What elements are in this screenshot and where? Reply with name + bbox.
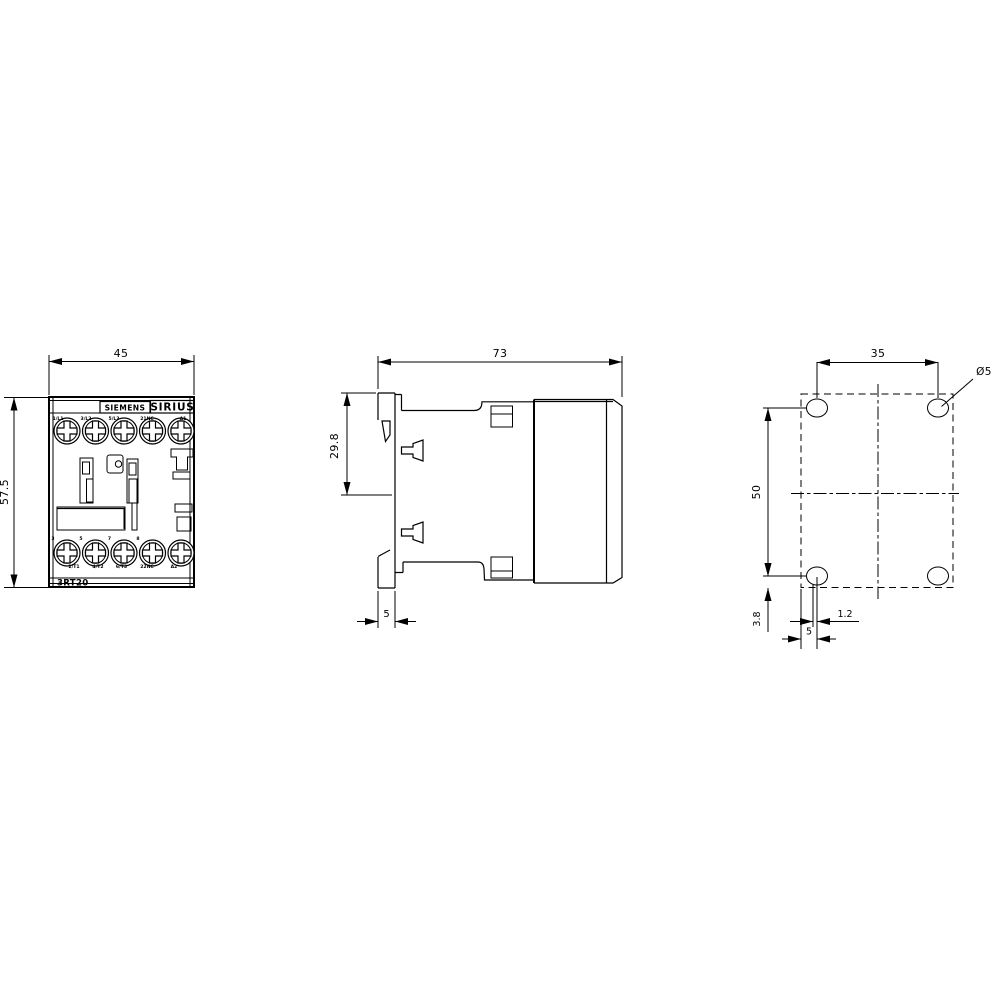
screw-mark: 3: [51, 536, 54, 542]
side-view: 73 29.8 5: [328, 347, 622, 628]
dim-text-height: 57.5: [0, 479, 11, 505]
model-number: 3RT20: [57, 579, 89, 589]
din-rail-plate: [378, 393, 395, 588]
mounting-hole: [928, 567, 949, 585]
screw-terminal-icon: [111, 540, 137, 566]
terminal-label: 6/T3: [116, 564, 127, 570]
terminal-label: 2/T1: [68, 564, 79, 570]
screw-terminal-icon: [54, 540, 80, 566]
terminal-label: 21NC: [140, 416, 154, 422]
dim-text-offset-small: 1.2: [837, 609, 852, 620]
dim-text-hook-width: 5: [383, 609, 389, 620]
front-view: SIEMENS SIRIUS 1/L1 3/L2 5/L3 21NC A1 2/…: [0, 347, 195, 589]
dim-text-hole-spacing-h: 35: [871, 347, 886, 360]
screw-mark: 7: [108, 536, 111, 542]
dim-text-rail-offset: 29.8: [328, 433, 341, 459]
device-footprint-dashed: [801, 394, 953, 588]
mounting-hole: [807, 399, 828, 417]
drilling-plan-view: 35 Ø5 50 3.8 1.2 5: [750, 347, 992, 649]
nameplate-area: [57, 507, 125, 530]
terminal-label: 4/T2: [92, 564, 103, 570]
terminal-label: A2: [171, 564, 178, 570]
dim-text-hole-spacing-v: 50: [750, 485, 763, 500]
terminal-label: 1/L1: [53, 416, 64, 422]
terminal-label: 3/L2: [81, 416, 92, 422]
brand-label: SIEMENS: [105, 404, 146, 413]
dim-text-edge-to-hole: 5: [806, 627, 812, 638]
screw-mark: 5: [79, 536, 82, 542]
housing-outline: [534, 400, 622, 584]
terminal-label: 22NC: [140, 564, 154, 570]
dim-text-hole-diameter: Ø5: [976, 366, 992, 378]
terminal-label: A1: [180, 416, 187, 422]
dim-text-edge-offset: 3.8: [752, 611, 763, 626]
upper-arm-outline: [395, 395, 534, 411]
dim-text-depth: 73: [493, 347, 508, 360]
dim-extension-lines: [341, 393, 392, 495]
terminal-label: 5/L3: [109, 416, 120, 422]
terminal-blocks-side: [491, 406, 513, 578]
leader-line: [942, 379, 974, 407]
series-label: SIRIUS: [150, 402, 194, 414]
aux-contact-slots: [80, 458, 138, 530]
screw-mark: 8: [136, 536, 139, 542]
lower-arm-outline: [395, 562, 534, 580]
screw-terminal-icon: [140, 540, 166, 566]
contactor-dimension-drawing: SIEMENS SIRIUS 1/L1 3/L2 5/L3 21NC A1 2/…: [0, 0, 1000, 1000]
dim-extension-lines: [763, 408, 807, 576]
screw-terminal-icon: [168, 540, 194, 566]
technical-drawing-page: SIEMENS SIRIUS 1/L1 3/L2 5/L3 21NC A1 2/…: [0, 0, 1000, 1000]
rail-clip-lugs: [402, 440, 424, 543]
rail-hook-claw: [382, 421, 390, 442]
mounting-hole: [928, 399, 949, 417]
dim-text-width: 45: [114, 347, 129, 360]
screw-terminal-icon: [83, 540, 109, 566]
actuator-hole: [115, 461, 121, 467]
